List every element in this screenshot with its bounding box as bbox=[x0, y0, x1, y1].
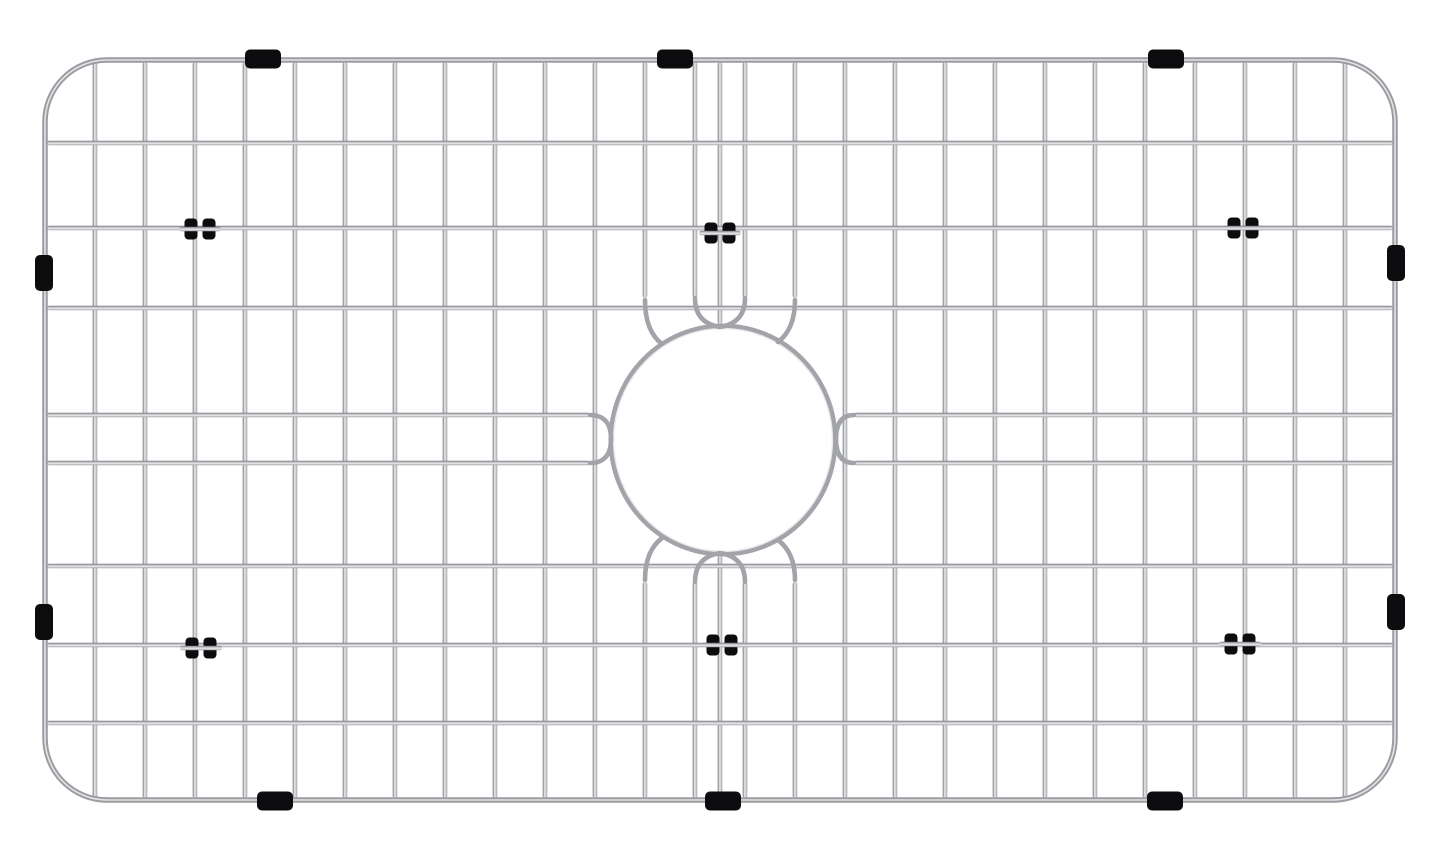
top-edge-bumper bbox=[245, 50, 281, 69]
vertical-wire bbox=[193, 62, 198, 798]
sink-grid-graphic bbox=[0, 0, 1445, 860]
vertical-wire bbox=[143, 62, 148, 798]
horizontal-wire bbox=[47, 461, 590, 466]
vertical-wire bbox=[793, 62, 798, 298]
vertical-wire bbox=[1193, 62, 1198, 798]
horizontal-wire bbox=[854, 461, 1393, 466]
vertical-wire bbox=[693, 582, 698, 798]
vertical-wire bbox=[343, 62, 348, 798]
horizontal-wire bbox=[47, 226, 1393, 231]
vertical-wire bbox=[993, 62, 998, 798]
vertical-wire bbox=[693, 62, 698, 298]
wire-through-clip bbox=[1222, 226, 1264, 231]
left-edge-bumper bbox=[35, 604, 53, 640]
vertical-wire bbox=[1343, 62, 1348, 798]
wire-through-clip bbox=[179, 227, 221, 232]
vertical-wire bbox=[893, 62, 898, 798]
vertical-wire bbox=[493, 62, 498, 798]
vertical-wire bbox=[743, 582, 748, 798]
vertical-wire bbox=[1093, 62, 1098, 798]
vertical-wire bbox=[293, 62, 298, 798]
vertical-wire bbox=[243, 62, 248, 798]
vertical-wire bbox=[718, 556, 723, 798]
drain-opening bbox=[611, 326, 835, 554]
horizontal-wire bbox=[47, 413, 590, 418]
vertical-wire bbox=[743, 62, 748, 298]
vertical-wire bbox=[1243, 62, 1248, 798]
vertical-wire bbox=[793, 582, 798, 798]
vertical-wire bbox=[843, 62, 848, 798]
left-edge-bumper bbox=[35, 255, 53, 291]
vertical-wire bbox=[393, 62, 398, 798]
horizontal-wire bbox=[854, 413, 1393, 418]
vertical-wire bbox=[1143, 62, 1148, 798]
bottom-edge-bumper bbox=[1147, 792, 1183, 811]
bottom-edge-bumper bbox=[705, 792, 741, 811]
right-edge-bumper bbox=[1387, 245, 1405, 281]
horizontal-wire bbox=[47, 721, 1393, 726]
vertical-wire bbox=[593, 62, 598, 798]
wire-through-clip bbox=[180, 646, 222, 651]
vertical-wire bbox=[643, 62, 648, 298]
wire-through-clip bbox=[699, 231, 741, 236]
horizontal-wire bbox=[47, 141, 1393, 146]
top-edge-bumper bbox=[1148, 50, 1184, 69]
vertical-wire bbox=[643, 582, 648, 798]
vertical-wire bbox=[943, 62, 948, 798]
vertical-wire bbox=[443, 62, 448, 798]
product-photo bbox=[0, 0, 1445, 860]
right-edge-bumper bbox=[1387, 594, 1405, 630]
vertical-wire bbox=[93, 62, 98, 798]
horizontal-wire bbox=[47, 564, 1393, 569]
horizontal-wire bbox=[47, 306, 1393, 311]
wire-through-clip bbox=[1219, 642, 1261, 647]
vertical-wire bbox=[543, 62, 548, 798]
vertical-wire bbox=[1043, 62, 1048, 798]
top-edge-bumper bbox=[657, 50, 693, 69]
wire-through-clip bbox=[701, 643, 743, 648]
vertical-wire bbox=[718, 62, 723, 324]
vertical-wire bbox=[1293, 62, 1298, 798]
bottom-edge-bumper bbox=[257, 792, 293, 811]
